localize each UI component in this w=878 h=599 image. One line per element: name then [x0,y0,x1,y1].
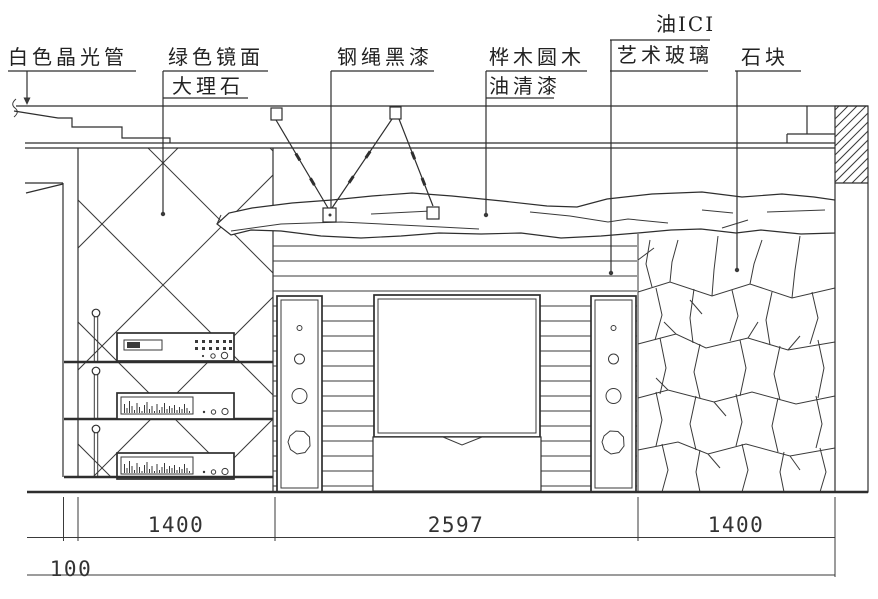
callout-glass-1: 油ICI [656,12,715,36]
callout-marble-2: 大理石 [172,74,244,98]
dim-right: 1400 [708,513,765,537]
dim-offset: 100 [50,557,92,581]
leader-lines [8,40,801,273]
amplifier-1 [117,393,234,419]
log-clamp-right [427,207,439,219]
ceiling-anchor-right [390,107,401,119]
turnbuckles [296,151,425,185]
callout-stone: 石块 [741,45,789,69]
amplifier-2 [117,453,234,479]
dimension-block: 1400 2597 1400 100 [27,497,835,581]
elevation-drawing: 1400 2597 1400 100 白色晶光管 绿色镜面 大理石 钢绳黑漆 桦… [0,0,878,599]
dim-center: 2597 [428,513,485,537]
callout-marble-1: 绿色镜面 [168,45,264,69]
callout-birch-2: 油清漆 [489,74,561,98]
ceiling-anchor-left [271,108,282,120]
ceiling [13,99,868,148]
birch-log [217,192,835,238]
callout-birch-1: 桦木圆木 [489,45,585,69]
leader-arrow [24,98,31,106]
support-pole-1 [92,309,100,361]
stone-panel [638,234,835,492]
ceiling-steps-right [787,106,835,143]
dvd-player [117,333,234,361]
tv-screen [374,295,540,437]
callout-light-tube: 白色晶光管 [8,45,128,69]
ceiling-steps-left [14,111,170,143]
cable-left [276,120,328,208]
speaker-left [277,296,322,492]
dim-left: 1400 [148,513,205,537]
tv-stand [373,437,541,491]
shelf-unit [64,309,273,479]
break-symbol [13,99,18,117]
callout-steel-rope: 钢绳黑漆 [337,45,433,69]
support-pole-3 [92,425,100,476]
left-wall [25,183,63,477]
support-pole-2 [92,367,100,418]
callout-glass-2: 艺术玻璃 [617,43,713,67]
side-column [695,0,878,492]
cad-canvas: 1400 2597 1400 100 白色晶光管 绿色镜面 大理石 钢绳黑漆 桦… [0,0,878,599]
speaker-right [591,296,636,492]
